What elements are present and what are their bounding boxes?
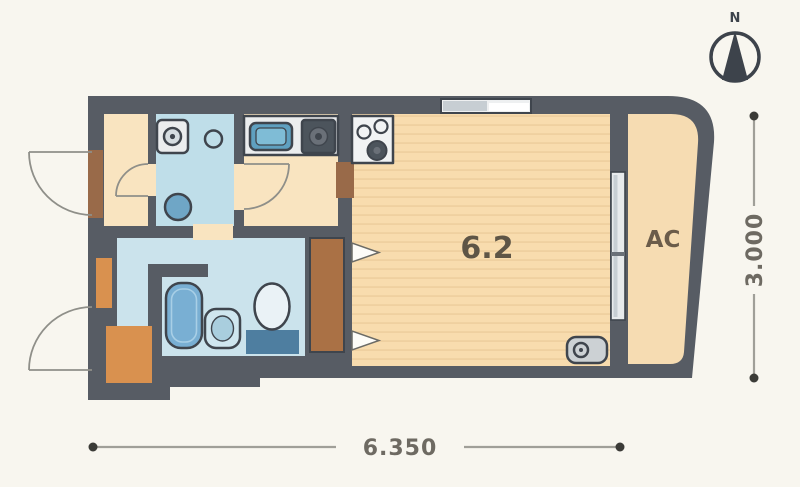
bathroom-threshold bbox=[193, 224, 233, 240]
floor-plan-page: N 6.350 3.000 6.2 AC bbox=[0, 0, 800, 487]
sliding-door-pane-icon bbox=[614, 175, 618, 317]
kitchen-sink-basin bbox=[256, 128, 286, 145]
dimension-endpoint-icon bbox=[89, 443, 98, 452]
stove-burner-dot-icon bbox=[315, 133, 322, 140]
kitchen-doorway-gap bbox=[234, 164, 244, 210]
gas-burner-small-icon bbox=[375, 120, 388, 133]
gas-burner-small-icon bbox=[358, 126, 371, 139]
toilet bbox=[255, 284, 290, 330]
front-door bbox=[88, 150, 103, 218]
dimension-endpoint-icon bbox=[750, 374, 759, 383]
floor-plan-canvas: N 6.350 3.000 6.2 AC bbox=[0, 0, 800, 487]
gas-burner-large-dot-icon bbox=[373, 147, 380, 154]
laundry-sink bbox=[205, 131, 222, 148]
window-pane-icon bbox=[489, 103, 529, 111]
entry-floor bbox=[104, 114, 148, 226]
balcony-label: AC bbox=[646, 227, 681, 253]
window-pane-icon bbox=[443, 101, 487, 111]
dimension-endpoint-icon bbox=[750, 112, 759, 121]
main-room-area-label: 6.2 bbox=[460, 231, 513, 266]
dimension-endpoint-icon bbox=[616, 443, 625, 452]
storage-box bbox=[106, 326, 152, 383]
pipe-space-door bbox=[96, 258, 112, 308]
balcony-sliding-door bbox=[611, 172, 625, 320]
closet bbox=[310, 238, 344, 352]
dimension-height-label: 3.000 bbox=[743, 213, 768, 288]
entry-doorway-gap bbox=[148, 164, 156, 196]
dimension-width-label: 6.350 bbox=[363, 436, 438, 461]
bath-partition-wall-top bbox=[148, 264, 208, 277]
wash-basin-bowl-icon bbox=[212, 316, 234, 341]
floor-drain bbox=[165, 194, 191, 220]
main-room-door bbox=[336, 162, 354, 198]
washing-machine-dot-icon bbox=[170, 134, 175, 139]
ac-pipe-outlet-dot-icon bbox=[579, 348, 583, 352]
toilet-base bbox=[246, 330, 299, 354]
sliding-door-latch-icon bbox=[611, 252, 625, 256]
compass-north-label: N bbox=[730, 11, 741, 26]
